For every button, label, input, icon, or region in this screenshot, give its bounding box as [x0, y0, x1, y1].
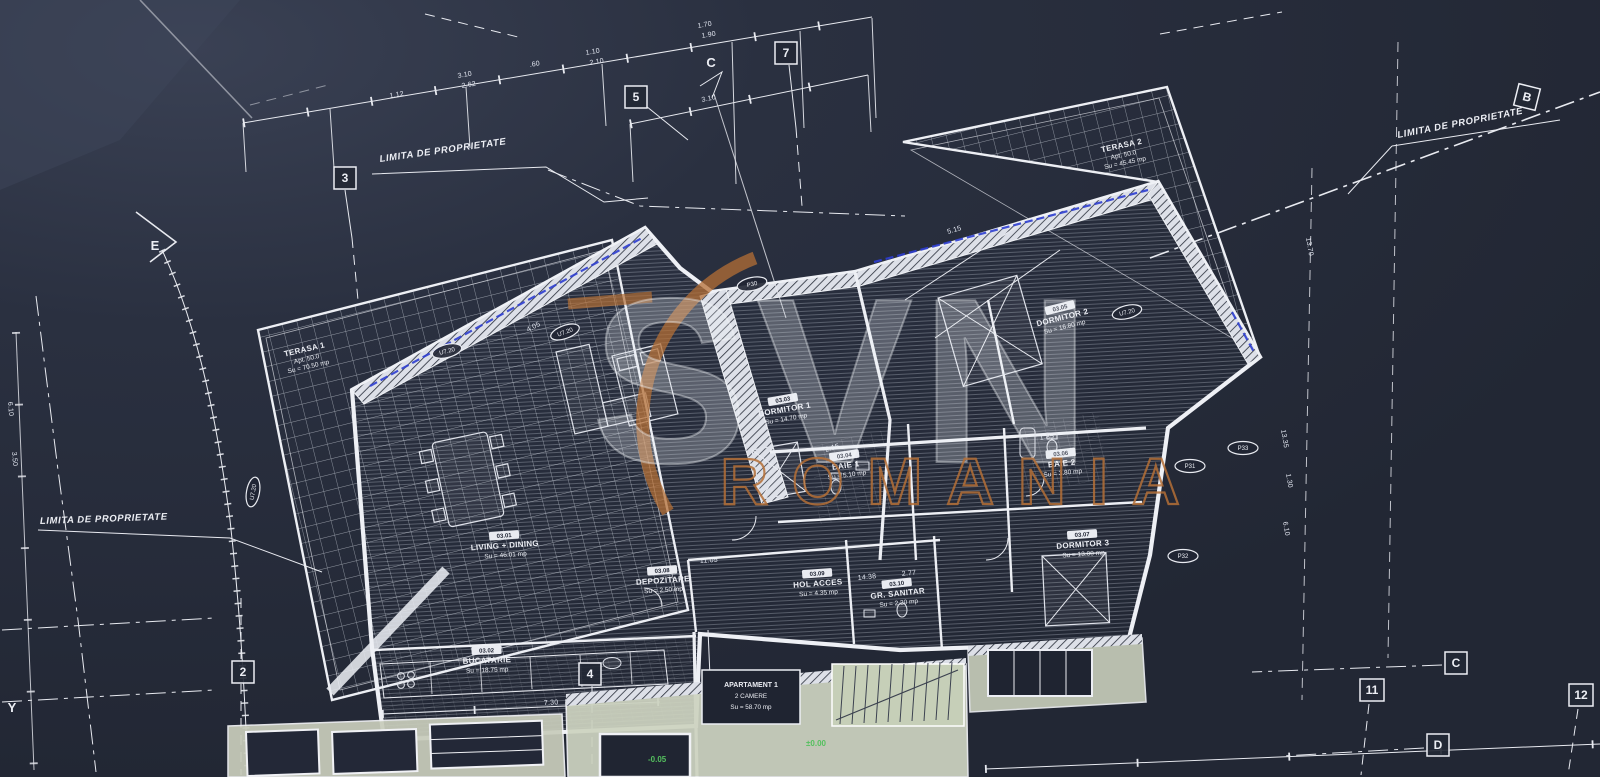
grid-marker-7: 7 [775, 42, 797, 64]
lower-window-block [988, 650, 1092, 696]
svg-text:03.08: 03.08 [654, 568, 670, 575]
grid-marker-b: B [1514, 84, 1541, 111]
apartment-info-block: APARTAMENT 1 2 CAMERE Su = 58.70 mp [702, 670, 800, 724]
svg-text:03.02: 03.02 [479, 648, 495, 655]
grid-marker-4: 4 [579, 663, 601, 685]
floorplan-photo: LIMITA DE PROPRIETATE LIMITA DE PROPRIET… [0, 0, 1600, 777]
level-mark-a: ±0.00 [806, 739, 827, 748]
svg-text:BUCATARIE: BUCATARIE [462, 655, 511, 666]
svg-text:3.50: 3.50 [10, 452, 18, 467]
svg-text:12: 12 [1574, 688, 1588, 702]
svg-text:D: D [1434, 738, 1443, 752]
svg-text:2 CAMERE: 2 CAMERE [735, 693, 767, 700]
grid-marker-3: 3 [334, 167, 356, 189]
svg-text:C: C [706, 55, 716, 70]
svg-text:2: 2 [240, 665, 247, 679]
svg-text:6.10: 6.10 [6, 402, 14, 417]
bed-dormitor-3 [1042, 553, 1110, 626]
svg-text:5: 5 [633, 90, 640, 104]
svg-text:03.07: 03.07 [1074, 532, 1090, 539]
svg-text:C: C [1452, 656, 1461, 670]
staircase [832, 662, 964, 726]
grid-marker-e: E [151, 238, 160, 253]
watermark-region: ROMANIA [720, 444, 1203, 518]
svg-text:4: 4 [587, 667, 594, 681]
svg-text:P32: P32 [1178, 554, 1189, 560]
svg-text:7: 7 [783, 46, 790, 60]
grid-marker-c-top: C [706, 55, 716, 70]
grid-marker-2: 2 [232, 661, 254, 683]
grid-marker-11: 11 [1360, 679, 1384, 701]
svg-text:03.01: 03.01 [496, 533, 512, 540]
svg-text:Y: Y [8, 700, 17, 715]
grid-marker-12: 12 [1569, 684, 1593, 706]
grid-marker-y: Y [8, 700, 17, 715]
svg-text:APARTAMENT 1: APARTAMENT 1 [724, 682, 778, 689]
level-mark-b: -0.05 [648, 755, 667, 764]
svg-text:11: 11 [1366, 683, 1379, 697]
svg-text:Su = 58.70 mp: Su = 58.70 mp [730, 704, 772, 711]
tag-p33: P33 [1228, 442, 1258, 455]
svg-text:E: E [151, 238, 160, 253]
elevator-shaft [600, 734, 690, 777]
tag-p32: P32 [1168, 550, 1198, 563]
svg-text:Su = 18.75 mp: Su = 18.75 mp [466, 666, 509, 674]
grid-marker-c-right: C [1445, 652, 1467, 674]
grid-marker-d: D [1427, 734, 1449, 756]
svg-text:3: 3 [342, 171, 349, 185]
floorplan-drawing: LIMITA DE PROPRIETATE LIMITA DE PROPRIET… [0, 0, 1600, 777]
grid-marker-5: 5 [625, 86, 647, 108]
svg-text:P33: P33 [1238, 446, 1249, 452]
svg-text:03.09: 03.09 [809, 571, 825, 578]
